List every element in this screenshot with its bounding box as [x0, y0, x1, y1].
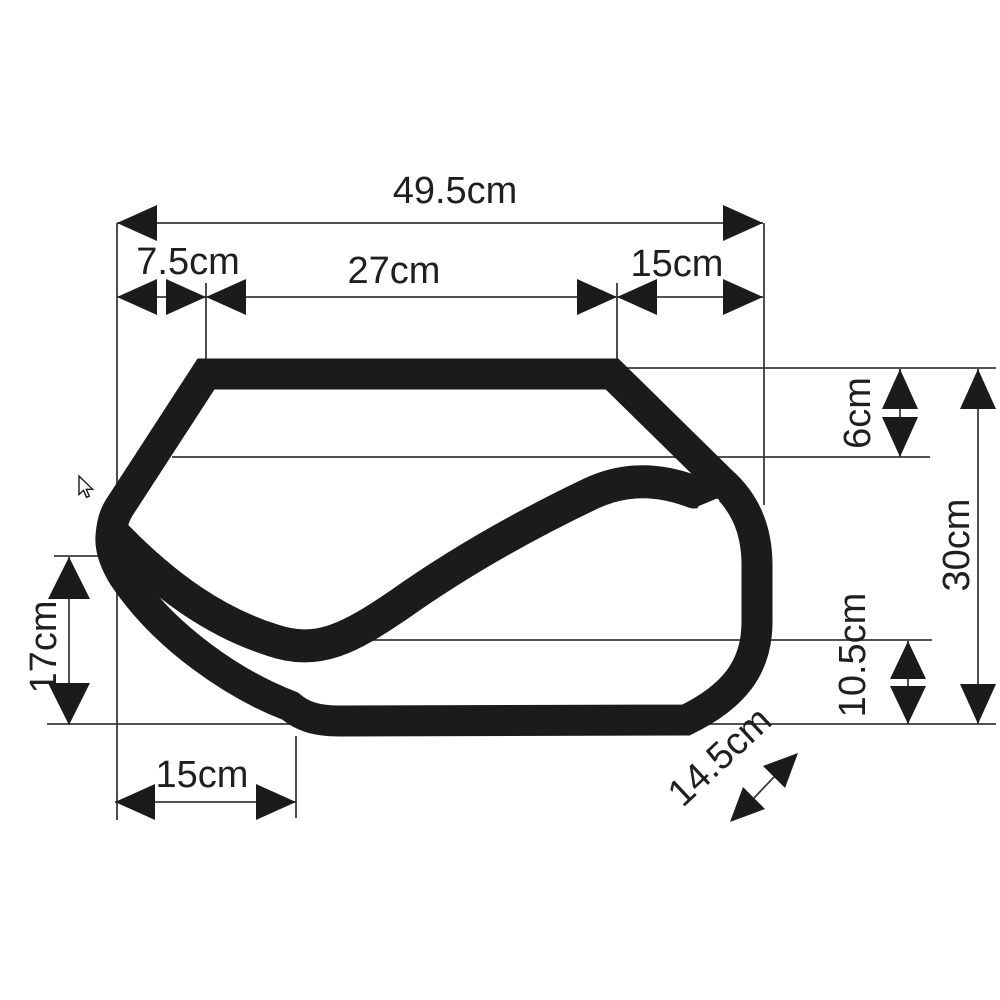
- dim-label-bottom-width: 15cm: [156, 754, 249, 796]
- arrowhead: [890, 641, 926, 679]
- arrowhead: [117, 205, 157, 241]
- dim-label-right-bottom: 10.5cm: [832, 593, 874, 718]
- arrowhead: [577, 279, 617, 315]
- arrowhead: [960, 684, 996, 724]
- object-outline: [111, 374, 757, 721]
- dim-label-overall-width: 49.5cm: [393, 170, 518, 212]
- object-shape: [111, 374, 757, 721]
- dim-label-right-total: 30cm: [936, 499, 978, 592]
- arrowhead: [882, 417, 918, 457]
- dim-label-right-top: 6cm: [837, 377, 879, 449]
- arrow-pointer-icon: [79, 476, 93, 497]
- arrowhead: [723, 279, 763, 315]
- diagram-page: 49.5cm 7.5cm 27cm 15cm 6cm 30cm 10.5cm 1…: [0, 0, 1000, 1000]
- arrowhead: [890, 686, 926, 724]
- dim-label-top-left: 7.5cm: [136, 241, 239, 283]
- dim-line-diagonal: [754, 777, 774, 798]
- arrowhead: [882, 369, 918, 409]
- dim-label-left-height: 17cm: [23, 601, 65, 694]
- arrowhead: [166, 279, 206, 315]
- dim-label-top-middle: 27cm: [348, 250, 441, 292]
- arrowhead: [48, 557, 90, 599]
- object-inner-curve: [118, 482, 720, 646]
- arrowhead: [960, 369, 996, 409]
- mouse-cursor-icon: [79, 476, 93, 497]
- arrowhead: [723, 205, 763, 241]
- arrowhead: [256, 784, 296, 820]
- arrowhead: [206, 279, 246, 315]
- dim-label-top-right: 15cm: [631, 243, 724, 285]
- arrowhead: [117, 279, 157, 315]
- diagram-canvas: 49.5cm 7.5cm 27cm 15cm 6cm 30cm 10.5cm 1…: [0, 0, 1000, 1000]
- arrowhead: [115, 784, 155, 820]
